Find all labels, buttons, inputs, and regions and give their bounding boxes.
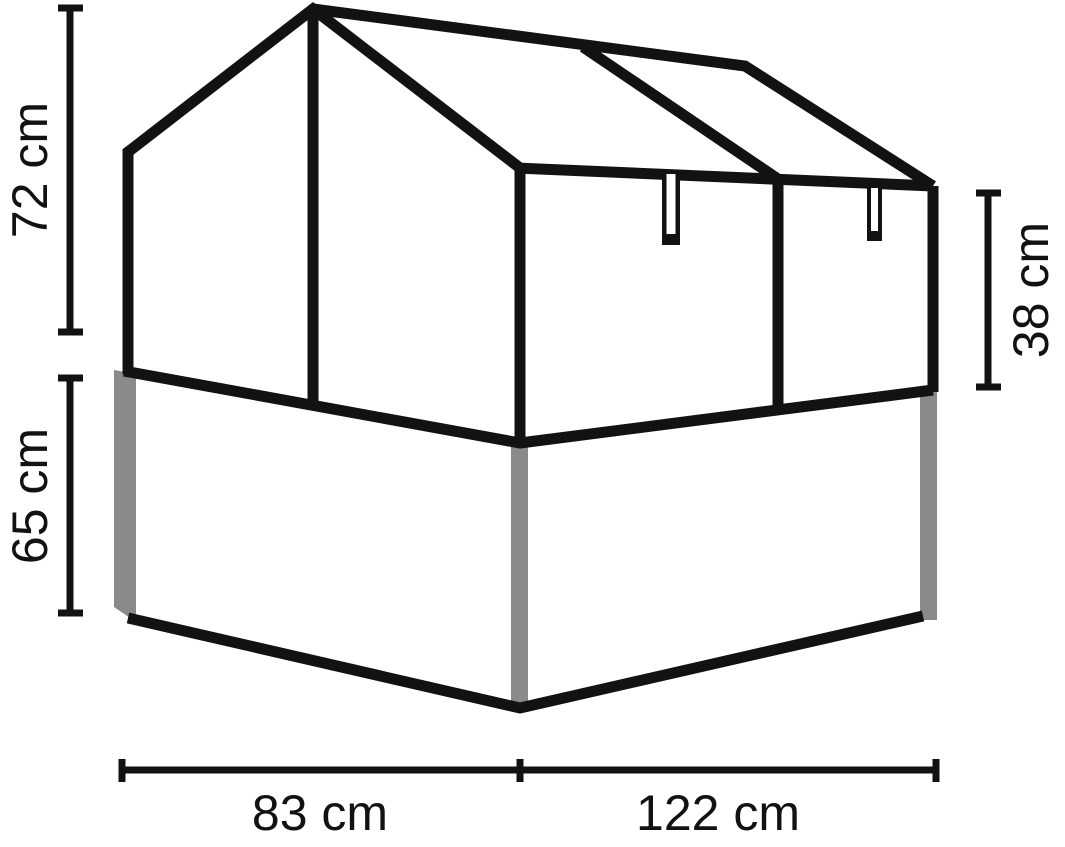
dimension-label-depth: 83 cm xyxy=(252,785,388,841)
dimension-labels: 72 cm 65 cm 38 cm 83 cm 122 cm xyxy=(2,102,1059,841)
bed-post-back-right xyxy=(920,389,937,620)
greenhouse-frame xyxy=(124,9,933,708)
dimension-label-upper-height: 72 cm xyxy=(2,102,58,238)
bed-top-rim xyxy=(124,371,933,443)
bed-post-front xyxy=(511,444,528,708)
dimension-label-bed-height: 65 cm xyxy=(2,428,58,564)
dimension-label-side-height: 38 cm xyxy=(1003,222,1059,358)
right-eave-beam xyxy=(516,168,933,186)
greenhouse-line-drawing: 72 cm 65 cm 38 cm 83 cm 122 cm xyxy=(0,0,1065,847)
dimension-label-width: 122 cm xyxy=(636,785,800,841)
dimension-drawing-canvas: 72 cm 65 cm 38 cm 83 cm 122 cm xyxy=(0,0,1065,847)
ridge-and-back-roof-edge xyxy=(313,9,933,186)
window-handle-right-slot xyxy=(871,188,878,231)
window-handle-left-slot xyxy=(667,174,676,234)
bed-post-left xyxy=(114,370,136,622)
